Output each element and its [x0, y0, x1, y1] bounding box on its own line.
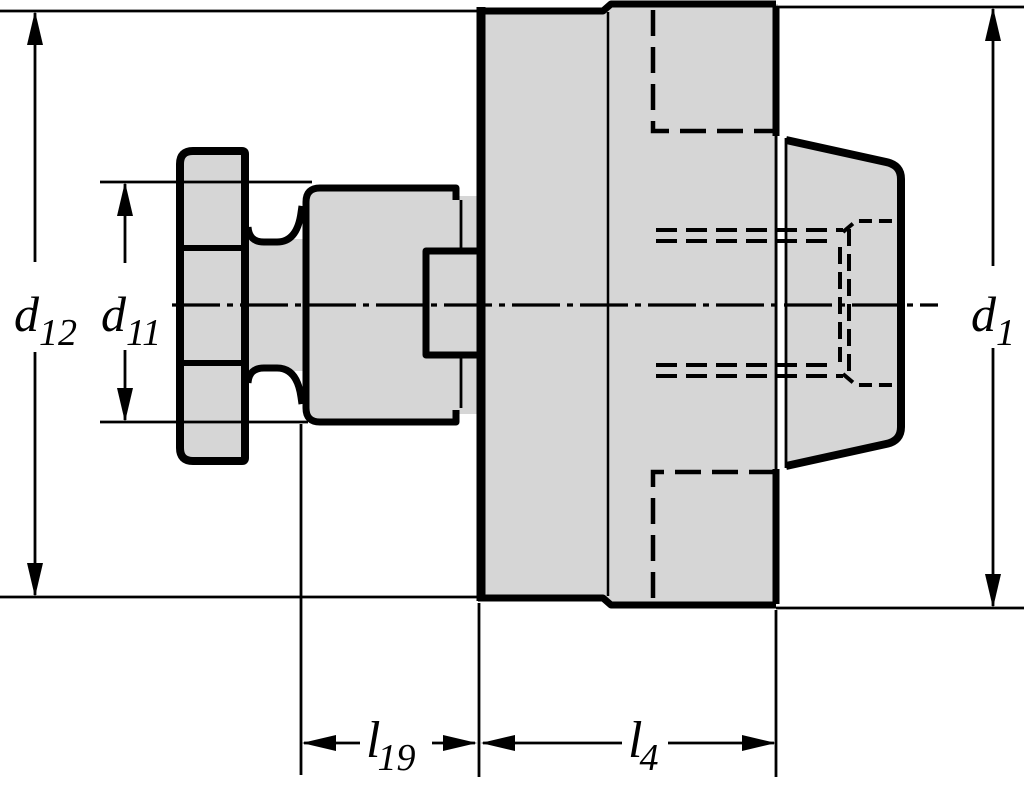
- label-d11: d11: [101, 286, 161, 354]
- l4-arrowhead-left: [481, 735, 515, 751]
- d1-arrowhead-top: [985, 7, 1001, 41]
- d12-arrowhead-top: [27, 11, 43, 45]
- l4-arrowhead-right: [742, 735, 776, 751]
- neck-top-edge: [248, 206, 302, 242]
- dimension-d1: d1: [971, 7, 1015, 608]
- label-l4: l4: [628, 712, 658, 779]
- neck-bottom-edge: [248, 368, 302, 404]
- dimension-d11: d11: [101, 182, 161, 422]
- technical-drawing: d12 d11 d1 l19 l4: [0, 0, 1024, 785]
- d1-arrowhead-bottom: [985, 574, 1001, 608]
- dimension-l4: l4: [481, 712, 776, 779]
- l19-arrowhead-right: [443, 735, 477, 751]
- taper-nose-fill: [786, 140, 901, 466]
- label-l19: l19: [366, 712, 415, 779]
- dimension-l19: l19: [302, 712, 477, 779]
- label-d1: d1: [971, 286, 1015, 354]
- technical-drawing-canvas: d12 d11 d1 l19 l4: [0, 0, 1024, 785]
- d11-arrowhead-top: [117, 182, 133, 216]
- l19-arrowhead-left: [302, 735, 336, 751]
- d12-arrowhead-bottom: [27, 563, 43, 597]
- label-d12: d12: [14, 286, 77, 354]
- d11-arrowhead-bottom: [117, 388, 133, 422]
- dimension-d12: d12: [14, 11, 77, 597]
